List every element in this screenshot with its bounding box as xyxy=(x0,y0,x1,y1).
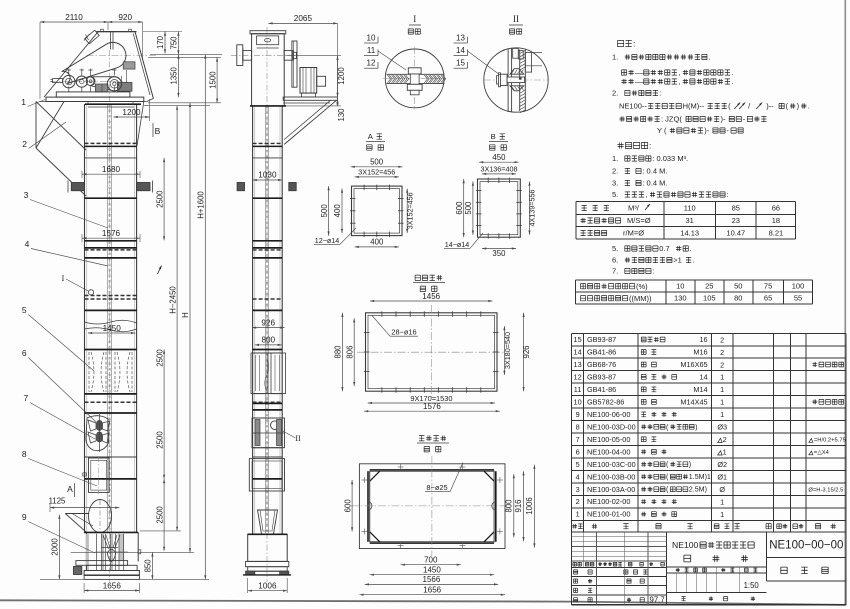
svg-text:NE100-02-00: NE100-02-00 xyxy=(587,497,630,506)
svg-text:3: 3 xyxy=(24,190,29,200)
svg-text:97.7: 97.7 xyxy=(650,595,665,604)
svg-text:>1: >1 xyxy=(673,256,682,265)
svg-text:10: 10 xyxy=(676,282,684,291)
svg-text:GB5782-86: GB5782-86 xyxy=(587,398,624,407)
svg-text:15: 15 xyxy=(456,59,465,68)
svg-text:: 0.4 M.: : 0.4 M. xyxy=(642,167,667,176)
svg-text:): ) xyxy=(689,461,691,469)
svg-text:10: 10 xyxy=(574,398,582,407)
svg-text:M³/: M³/ xyxy=(628,204,640,213)
svg-text:8−ø25: 8−ø25 xyxy=(426,483,447,492)
svg-text:800: 800 xyxy=(504,499,513,513)
svg-text:130: 130 xyxy=(674,294,687,303)
svg-text:926: 926 xyxy=(522,345,531,358)
svg-text:7: 7 xyxy=(24,393,29,403)
svg-text:1: 1 xyxy=(720,497,724,506)
svg-text:400: 400 xyxy=(370,238,384,247)
svg-text:1450: 1450 xyxy=(103,324,122,333)
svg-text:II: II xyxy=(295,434,301,443)
svg-text:NE100-03D-00: NE100-03D-00 xyxy=(587,422,636,431)
svg-text:I: I xyxy=(62,274,65,283)
svg-text:4: 4 xyxy=(25,239,30,249)
svg-text:NE100-06-00: NE100-06-00 xyxy=(587,410,630,419)
svg-text:400: 400 xyxy=(333,204,342,218)
svg-text:GB93-87: GB93-87 xyxy=(587,335,616,344)
svg-text:700: 700 xyxy=(424,556,438,565)
svg-text:)-: )- xyxy=(721,115,726,124)
svg-text:: JZQ(: : JZQ( xyxy=(661,115,682,124)
svg-text:2.5M): 2.5M) xyxy=(689,486,707,494)
svg-text:H+1600: H+1600 xyxy=(197,191,206,219)
svg-text:NE100: NE100 xyxy=(672,540,698,550)
svg-text:1: 1 xyxy=(720,398,724,407)
svg-text:1.5M)1: 1.5M)1 xyxy=(689,473,711,481)
svg-text:880: 880 xyxy=(334,345,343,359)
svg-text:600: 600 xyxy=(455,201,464,215)
svg-text:1656: 1656 xyxy=(423,586,441,595)
svg-text:M16X65: M16X65 xyxy=(680,360,707,369)
svg-text:500: 500 xyxy=(320,204,329,218)
svg-text:1006: 1006 xyxy=(258,582,277,591)
svg-text:1:50: 1:50 xyxy=(744,581,760,590)
svg-text:450: 450 xyxy=(492,153,506,162)
svg-text:NE100-05-00: NE100-05-00 xyxy=(587,435,630,444)
svg-text:1450: 1450 xyxy=(423,566,441,575)
svg-text:500: 500 xyxy=(370,158,384,167)
svg-text:B: B xyxy=(491,132,496,141)
svg-text:1456: 1456 xyxy=(422,292,440,301)
svg-text:2000: 2000 xyxy=(51,538,60,556)
svg-text:18: 18 xyxy=(772,216,780,225)
svg-text:14: 14 xyxy=(574,348,582,357)
svg-text:r/M=Ø: r/M=Ø xyxy=(623,229,644,238)
svg-text:Ø1: Ø1 xyxy=(717,473,727,482)
svg-text:14: 14 xyxy=(456,46,465,55)
svg-text:GB93-87: GB93-87 xyxy=(587,373,616,382)
svg-text:4X139=556: 4X139=556 xyxy=(528,190,537,227)
svg-text:50: 50 xyxy=(734,282,742,291)
svg-text:NE100-03A-00: NE100-03A-00 xyxy=(587,485,635,494)
svg-text:3X152=456: 3X152=456 xyxy=(405,192,414,229)
svg-text:14: 14 xyxy=(699,373,707,382)
svg-text:1576: 1576 xyxy=(102,229,121,238)
svg-text:2500: 2500 xyxy=(155,349,164,367)
svg-text:1.: 1. xyxy=(612,53,618,62)
svg-text:65: 65 xyxy=(764,294,772,303)
svg-text:2065: 2065 xyxy=(294,14,313,23)
svg-text:750: 750 xyxy=(170,36,179,50)
svg-text:13: 13 xyxy=(574,360,582,369)
svg-text:1200: 1200 xyxy=(122,108,141,117)
svg-text::: : xyxy=(659,89,661,98)
svg-text:A: A xyxy=(67,484,73,494)
svg-text:B: B xyxy=(155,126,161,136)
svg-text:4: 4 xyxy=(576,472,580,481)
svg-text:12−ø14: 12−ø14 xyxy=(315,236,340,245)
svg-text:)-: )- xyxy=(704,126,709,135)
svg-text:31: 31 xyxy=(686,216,694,225)
svg-text:2500: 2500 xyxy=(155,431,164,449)
svg-text:6: 6 xyxy=(22,348,27,358)
svg-text:806: 806 xyxy=(345,346,354,359)
svg-text:NE100-04-00: NE100-04-00 xyxy=(587,447,630,456)
svg-text:1: 1 xyxy=(720,385,724,394)
svg-text:Ø3: Ø3 xyxy=(717,423,727,432)
svg-text:5: 5 xyxy=(576,460,580,469)
svg-text:920: 920 xyxy=(118,13,132,22)
svg-text:14.13: 14.13 xyxy=(680,229,699,238)
svg-text:8.21: 8.21 xyxy=(769,229,784,238)
svg-text:=H/0.2+5.75: =H/0.2+5.75 xyxy=(814,438,846,444)
svg-text:850: 850 xyxy=(144,559,153,573)
svg-text:5.: 5. xyxy=(612,190,618,199)
svg-text:3X180=540: 3X180=540 xyxy=(503,332,512,369)
svg-text:8: 8 xyxy=(576,422,580,431)
svg-text:)--: )-- xyxy=(766,102,774,111)
svg-text:1: 1 xyxy=(576,510,580,519)
svg-text:2: 2 xyxy=(723,435,727,444)
svg-text:1576: 1576 xyxy=(423,402,441,411)
svg-text:.: . xyxy=(731,68,733,77)
svg-text:1030: 1030 xyxy=(258,170,277,179)
svg-text:1.: 1. xyxy=(612,154,618,163)
svg-text:926: 926 xyxy=(261,318,275,327)
svg-text:2: 2 xyxy=(22,139,27,149)
svg-text:: 0.033 M³.: : 0.033 M³. xyxy=(652,154,688,163)
svg-text::: : xyxy=(726,190,728,199)
svg-text:1200: 1200 xyxy=(337,67,346,85)
svg-text:5: 5 xyxy=(22,305,27,315)
svg-text:M/S=Ø: M/S=Ø xyxy=(627,216,651,225)
svg-text:14−ø14: 14−ø14 xyxy=(445,240,470,249)
svg-text:5.: 5. xyxy=(612,244,618,253)
svg-text:55: 55 xyxy=(794,294,802,303)
svg-text:I: I xyxy=(413,14,416,24)
svg-text:3X136=408: 3X136=408 xyxy=(481,165,518,174)
svg-text:.: . xyxy=(690,244,692,253)
svg-text:3.: 3. xyxy=(612,179,618,188)
svg-text:Ø: Ø xyxy=(719,485,725,494)
svg-text:0.7: 0.7 xyxy=(659,244,669,253)
svg-text:2.: 2. xyxy=(612,89,618,98)
svg-text:.: . xyxy=(708,53,710,62)
svg-text:105: 105 xyxy=(703,294,716,303)
svg-text:500: 500 xyxy=(464,201,473,215)
svg-text:((MM)): ((MM)) xyxy=(629,294,652,303)
svg-text:NE100-01-00: NE100-01-00 xyxy=(587,510,630,519)
svg-text:10.47: 10.47 xyxy=(726,229,745,238)
svg-text:3X152=456: 3X152=456 xyxy=(358,168,395,177)
svg-text:NE100-03B-00: NE100-03B-00 xyxy=(587,472,635,481)
svg-text:): ) xyxy=(695,423,697,431)
svg-text:7.: 7. xyxy=(612,267,618,276)
svg-text:10: 10 xyxy=(367,33,376,42)
svg-text:1: 1 xyxy=(21,97,26,107)
svg-text:13: 13 xyxy=(456,33,465,42)
svg-text:6.: 6. xyxy=(612,256,618,265)
svg-text:2: 2 xyxy=(720,348,724,357)
svg-text:11: 11 xyxy=(574,385,582,394)
svg-text:=△X4: =△X4 xyxy=(814,450,830,456)
svg-text:12: 12 xyxy=(367,59,376,68)
svg-text:,: , xyxy=(678,77,680,86)
svg-text:——: —— xyxy=(635,68,651,77)
svg-text:Ø2: Ø2 xyxy=(717,460,727,469)
svg-text:1680: 1680 xyxy=(102,165,121,174)
svg-text:M16: M16 xyxy=(693,348,707,357)
svg-text::: : xyxy=(633,39,635,49)
svg-text:916: 916 xyxy=(514,499,523,512)
svg-text:3: 3 xyxy=(576,485,580,494)
svg-text:2: 2 xyxy=(720,335,724,344)
svg-text:1500: 1500 xyxy=(208,71,217,89)
svg-text:1006: 1006 xyxy=(525,497,534,514)
svg-text:12: 12 xyxy=(574,373,582,382)
svg-text:.: . xyxy=(808,102,810,111)
svg-text:28−ø16: 28−ø16 xyxy=(391,328,416,337)
svg-text:23: 23 xyxy=(732,216,740,225)
svg-text:GB41-86: GB41-86 xyxy=(587,385,616,394)
svg-text:1350: 1350 xyxy=(170,66,179,84)
svg-text:A: A xyxy=(368,132,374,141)
svg-text:600: 600 xyxy=(343,499,352,513)
svg-text:7: 7 xyxy=(576,435,580,444)
svg-text:16: 16 xyxy=(699,335,707,344)
svg-text:Ø=H-3.15/2.5: Ø=H-3.15/2.5 xyxy=(808,488,843,494)
svg-text:170: 170 xyxy=(156,35,165,49)
svg-text:15: 15 xyxy=(574,335,582,344)
svg-text:66: 66 xyxy=(772,204,780,213)
svg-text:GB68-76: GB68-76 xyxy=(587,360,616,369)
svg-text:M14: M14 xyxy=(693,385,707,394)
svg-text:800: 800 xyxy=(261,336,275,345)
svg-text:1656: 1656 xyxy=(103,581,122,590)
svg-text:6: 6 xyxy=(576,447,580,456)
svg-text:11: 11 xyxy=(367,46,376,55)
svg-text:110: 110 xyxy=(684,204,696,213)
svg-text:130: 130 xyxy=(337,108,346,122)
svg-text:85: 85 xyxy=(732,204,740,213)
svg-text:H(M)--: H(M)-- xyxy=(683,102,705,111)
svg-text:2.: 2. xyxy=(612,167,618,176)
svg-text:350: 350 xyxy=(492,249,506,258)
svg-text:2: 2 xyxy=(720,360,724,369)
svg-text:9: 9 xyxy=(22,512,27,522)
svg-text:NE100−00−00: NE100−00−00 xyxy=(769,540,843,552)
svg-text:100: 100 xyxy=(792,282,805,291)
svg-text:——: —— xyxy=(635,77,651,86)
svg-text:,: , xyxy=(678,68,680,77)
svg-text:II: II xyxy=(513,14,519,24)
svg-text::: : xyxy=(652,267,654,276)
svg-text:1: 1 xyxy=(720,510,724,519)
svg-text:M14X45: M14X45 xyxy=(680,398,707,407)
svg-text:8: 8 xyxy=(22,449,27,459)
svg-text:H−2450: H−2450 xyxy=(168,286,177,314)
svg-text:(%): (%) xyxy=(636,282,648,291)
svg-text:1: 1 xyxy=(720,410,724,419)
svg-text:80: 80 xyxy=(734,294,742,303)
svg-text:.: . xyxy=(693,256,695,265)
svg-text:NE100-03C-00: NE100-03C-00 xyxy=(587,460,636,469)
svg-text:25: 25 xyxy=(705,282,713,291)
svg-text:1125: 1125 xyxy=(49,497,66,506)
svg-text:H: H xyxy=(181,312,190,318)
svg-text:1566: 1566 xyxy=(423,575,441,584)
svg-text::: : xyxy=(649,141,651,151)
svg-text:,: , xyxy=(645,190,647,199)
svg-text:: 0.4 M.: : 0.4 M. xyxy=(642,179,667,188)
svg-text:NE100--: NE100-- xyxy=(619,102,647,111)
svg-text:9: 9 xyxy=(576,410,580,419)
svg-text:1: 1 xyxy=(723,448,727,457)
svg-text:2500: 2500 xyxy=(155,190,164,208)
svg-text:1: 1 xyxy=(720,373,724,382)
svg-text:75: 75 xyxy=(764,282,772,291)
svg-text:2110: 2110 xyxy=(65,13,83,22)
svg-text:GB41-86: GB41-86 xyxy=(587,348,616,357)
svg-text:Y (: Y ( xyxy=(657,126,667,135)
svg-text:2500: 2500 xyxy=(155,506,164,524)
svg-text:2: 2 xyxy=(576,497,580,506)
svg-text:.: . xyxy=(731,77,733,86)
